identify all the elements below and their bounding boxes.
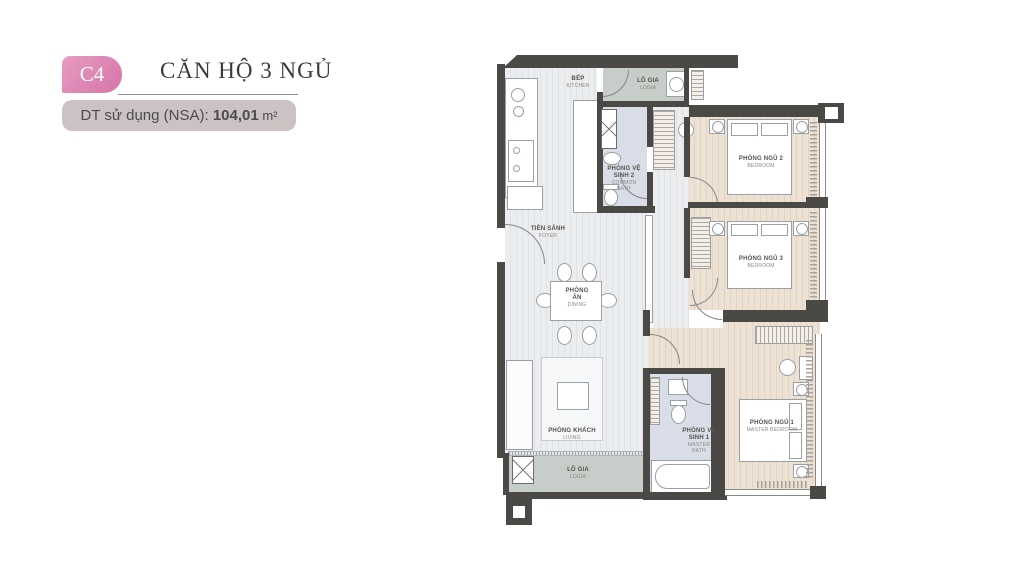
label-bath2-en: COMMON BATH (606, 180, 642, 192)
shaft-column-x (512, 456, 534, 484)
label-living-vn: PHÒNG KHÁCH (548, 428, 596, 435)
label-dining: PHÒNG ĂN DINING (561, 288, 593, 308)
bed-2-pillow-1 (731, 123, 758, 136)
block-bottom-right (810, 486, 826, 499)
wall-bedroom3-left (684, 208, 690, 278)
label-bedroom2: PHÒNG NGỦ 2 BEDROOM (731, 156, 791, 169)
lamp-3-right (796, 223, 808, 235)
wall-bedroom2-3-divider (688, 202, 820, 208)
curtain-bedroom2 (810, 122, 817, 196)
curtain-bedroom1-bottom (757, 481, 809, 488)
window-bedroom1-bottom (725, 489, 812, 496)
dining-chair-3 (557, 326, 572, 345)
label-bedroom2-vn: PHÒNG NGỦ 2 (739, 156, 783, 163)
bathtub-basin (655, 464, 710, 489)
area-value: 104,01 (213, 107, 259, 124)
wall-bath1-top (643, 368, 717, 374)
bed-1-pillow-2 (789, 432, 802, 459)
tv-feature-wall (645, 215, 653, 323)
wall-left-lower (497, 262, 505, 458)
label-bedroom1: PHÒNG NGỦ 1 MASTER BEDROOM (741, 420, 803, 433)
window-bedroom1-right (815, 334, 822, 486)
wall-bath2-right-a (647, 101, 653, 147)
dining-chair-1 (557, 263, 572, 282)
label-bath2: PHÒNG VỆ SINH 2 COMMON BATH (606, 166, 642, 192)
label-bedroom1-en: MASTER BEDROOM (747, 427, 798, 433)
lamp-3-left (712, 223, 724, 235)
bed-3-pillow-2 (761, 224, 788, 236)
label-foyer-vn: TIỀN SẢNH (531, 226, 565, 233)
column-bottom-left-core (513, 506, 525, 518)
label-bath1-en: MASTER BATH (681, 442, 717, 454)
dining-chair-2 (582, 263, 597, 282)
wall-bedwing-top (689, 105, 820, 117)
label-bedroom3-en: BEDROOM (747, 263, 774, 269)
label-kitchen-en: KITCHEN (566, 83, 589, 89)
curtain-bedroom1-right (806, 340, 813, 480)
coffee-table (557, 382, 589, 410)
wall-logia-right (684, 68, 689, 105)
label-bath2-vn: PHÒNG VỆ SINH 2 (606, 166, 642, 180)
area-unit: m² (259, 108, 278, 123)
label-logia-top: LÔ GIA LOGIA (628, 78, 668, 91)
wall-bath2-top (597, 101, 689, 107)
lamp-2-left (712, 121, 724, 133)
label-logia-bottom-en: LOGIA (570, 474, 586, 480)
label-foyer: TIỀN SẢNH FOYER (523, 226, 573, 239)
area-info-box: DT sử dụng (NSA): 104,01 m² (62, 100, 296, 131)
stove-burner-2 (513, 165, 520, 172)
window-bedroom3 (819, 208, 826, 300)
bath2-shower (601, 109, 617, 149)
bath2-sink (603, 152, 621, 165)
wall-bath1-bottom (643, 492, 727, 500)
label-logia-bottom: LÔ GIA LOGIA (558, 467, 598, 480)
label-bath1-vn: PHÒNG VỆ SINH 1 (681, 428, 717, 442)
wall-logia-bath-divider (643, 455, 650, 497)
title-underline (118, 94, 298, 95)
wall-bedroom2-left (684, 117, 690, 177)
block-window-mid-b (806, 300, 828, 322)
label-bedroom3: PHÒNG NGỦ 3 BEDROOM (731, 256, 791, 269)
label-bath1: PHÒNG VỆ SINH 1 MASTER BATH (681, 428, 717, 454)
wall-corridor-stub (643, 310, 650, 336)
wall-left-upper (497, 64, 505, 228)
kitchen-cabinet (507, 186, 543, 210)
kitchen-island (573, 100, 598, 213)
label-logia-top-en: LOGIA (640, 85, 656, 91)
bath1-shelf (650, 377, 660, 425)
label-bedroom1-vn: PHÒNG NGỦ 1 (750, 420, 794, 427)
dining-chair-4 (582, 326, 597, 345)
curtain-bedroom3 (810, 212, 817, 298)
block-window-mid-a (806, 197, 828, 208)
label-dining-en: DINING (568, 302, 587, 308)
wall-bath2-bottom (597, 206, 655, 213)
stool-bedroom1 (779, 359, 796, 376)
bed-3-pillow-1 (731, 224, 758, 236)
wall-bath1-left (643, 368, 650, 458)
label-kitchen-vn: BẾP (572, 76, 585, 83)
wall-logia-bottom-outer (506, 492, 645, 499)
bedroom3-closet (691, 217, 711, 269)
label-bedroom3-vn: PHÒNG NGỦ 3 (739, 256, 783, 263)
wall-logia-bottom-left (503, 453, 509, 495)
floorplan-page: C4 CĂN HỘ 3 NGỦ DT sử dụng (NSA): 104,01… (0, 0, 1024, 576)
label-living: PHÒNG KHÁCH LIVING (540, 428, 604, 441)
kitchen-stove (508, 140, 534, 182)
washing-machine-door (669, 77, 684, 92)
label-bedroom2-en: BEDROOM (747, 163, 774, 169)
wall-top (503, 55, 738, 68)
stove-burner-1 (513, 147, 520, 154)
bedroom1-wardrobe (755, 326, 813, 344)
label-logia-top-vn: LÔ GIA (637, 78, 659, 85)
bath1-toilet (671, 405, 686, 424)
window-bedroom2 (819, 117, 826, 197)
area-label: DT sử dụng (NSA): (81, 107, 213, 124)
apartment-code-badge: C4 (62, 56, 122, 93)
sofa (506, 360, 533, 450)
kitchen-sink-bowl-1 (511, 88, 525, 102)
drying-rack (691, 70, 704, 100)
bed-2-pillow-2 (761, 123, 788, 136)
bedroom1-door-arc (692, 290, 722, 320)
page-title: CĂN HỘ 3 NGỦ (160, 58, 332, 84)
lamp-2-right (796, 121, 808, 133)
label-foyer-en: FOYER (539, 233, 557, 239)
corridor-closet (653, 110, 675, 170)
column-top-right-core (825, 107, 838, 119)
label-logia-bottom-vn: LÔ GIA (567, 467, 589, 474)
label-dining-vn: PHÒNG ĂN (561, 288, 593, 302)
kitchen-sink-bowl-2 (513, 106, 524, 117)
label-kitchen: BẾP KITCHEN (553, 76, 603, 89)
label-living-en: LIVING (563, 435, 581, 441)
